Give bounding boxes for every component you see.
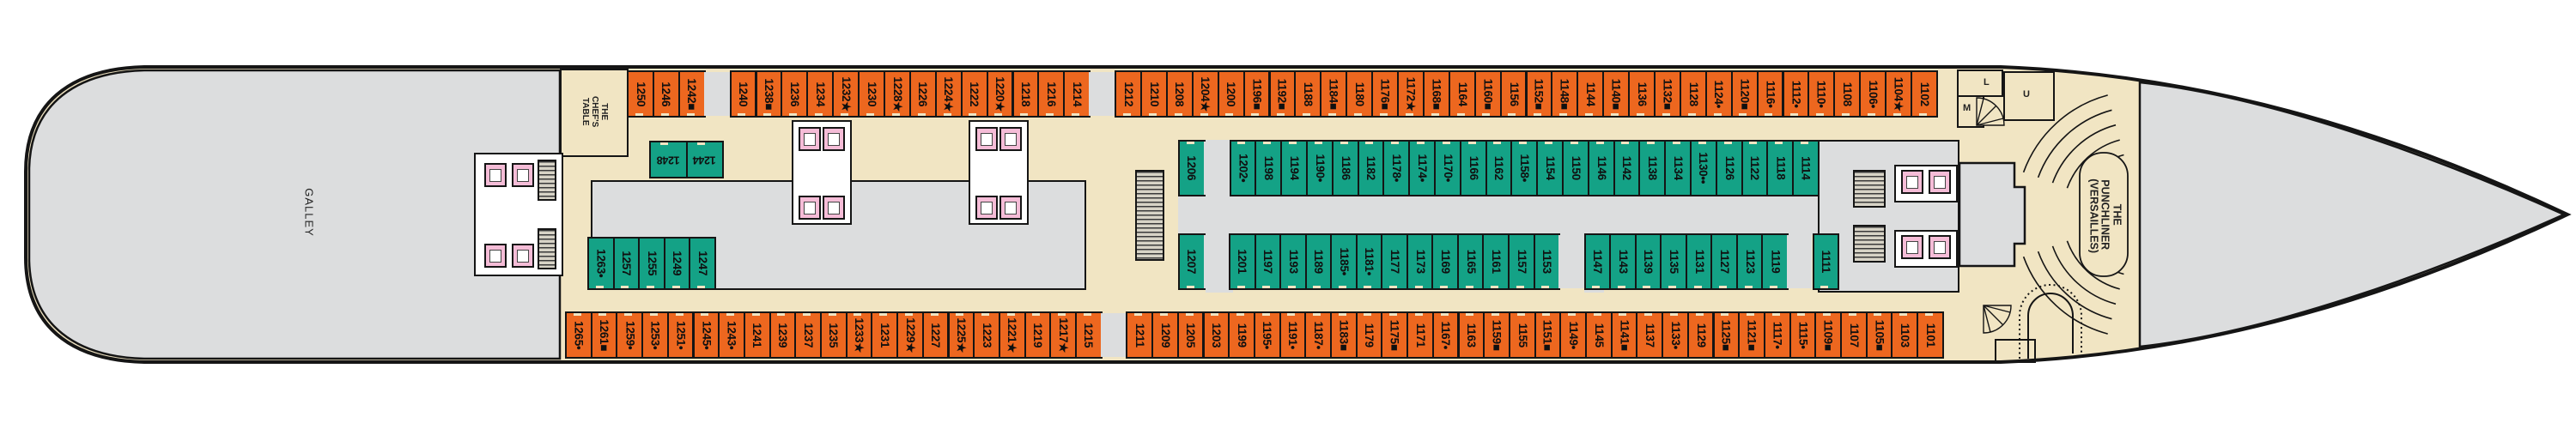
cabin-door (1893, 113, 1901, 117)
elevator-label-u: U (2023, 89, 2030, 100)
cabin-1132[interactable]: 1132■ (1654, 70, 1681, 118)
cabin-number: 1211 (1133, 323, 1145, 347)
cabin-door (1698, 141, 1706, 144)
row-gap (704, 72, 730, 116)
cabin-number: 1140■ (1610, 79, 1622, 110)
cabin-door (1339, 312, 1346, 316)
cabin-door (1211, 312, 1218, 316)
cabin-1253[interactable]: 1253• (641, 311, 669, 359)
cabin-1122[interactable]: 1122 (1741, 140, 1769, 196)
cabin-1129[interactable]: 1129 (1687, 311, 1715, 359)
cabin-1221[interactable]: 1221★ (999, 311, 1026, 359)
cabin-door (1816, 113, 1824, 117)
cabin-1144[interactable]: 1144 (1577, 70, 1604, 118)
theater-stage (1959, 163, 2025, 266)
cabin-1145[interactable]: 1145 (1585, 311, 1613, 359)
cabin-door (1618, 286, 1625, 289)
cabin-door (1643, 286, 1650, 289)
cabin-1184[interactable]: 1184■ (1320, 70, 1347, 118)
cabin-door (621, 286, 629, 289)
cabin-1103[interactable]: 1103 (1891, 311, 1918, 359)
cabin-number: 1158• (1519, 154, 1531, 183)
cabin-door (1571, 141, 1578, 144)
cabin-1150[interactable]: 1150 (1562, 140, 1589, 196)
cabin-1251[interactable]: 1251• (667, 311, 695, 359)
cabin-number: 1157 (1516, 250, 1528, 274)
cabin-1215[interactable]: 1215 (1075, 311, 1103, 359)
cabin-1128[interactable]: 1128 (1680, 70, 1707, 118)
cabin-number: 1134 (1672, 156, 1684, 180)
stairs-icon (1853, 170, 1886, 208)
cabin-1178[interactable]: 1178• (1382, 140, 1410, 196)
cabin-door (1315, 141, 1322, 144)
cabin-1174[interactable]: 1174• (1408, 140, 1436, 196)
cabin-1143[interactable]: 1143 (1609, 233, 1637, 290)
elevator-icon (512, 163, 534, 187)
cabin-1110[interactable]: 1110• (1807, 70, 1835, 118)
cabin-number: 1112• (1790, 81, 1802, 108)
cabin-1153[interactable]: 1153 (1534, 233, 1561, 290)
cabin-1199[interactable]: 1199 (1228, 311, 1255, 359)
cabin-1246[interactable]: 1246 (653, 70, 680, 118)
cabin-door (1797, 312, 1805, 316)
cabin-1101[interactable]: 1101 (1917, 311, 1944, 359)
cabin-1203[interactable]: 1203 (1203, 311, 1230, 359)
cabin-1120[interactable]: 1120■ (1731, 70, 1759, 118)
cabin-1169[interactable]: 1169 (1431, 233, 1459, 290)
cabin-1198[interactable]: 1198 (1255, 140, 1282, 196)
cabin-1115[interactable]: 1115• (1789, 311, 1817, 359)
cabin-door (981, 312, 989, 316)
cabin-door (1225, 113, 1233, 117)
cabin-1250[interactable]: 1250 (627, 70, 654, 118)
elevator-icon (999, 127, 1022, 151)
cabin-1149[interactable]: 1149• (1559, 311, 1587, 359)
cabin-1206[interactable]: 1206 (1178, 140, 1206, 196)
cabin-1176[interactable]: 1176■ (1371, 70, 1399, 118)
cabin-1127[interactable]: 1127 (1710, 233, 1738, 290)
cabin-number: 1168■ (1431, 79, 1443, 110)
cabin-1154[interactable]: 1154 (1536, 140, 1564, 196)
cabin-1236[interactable]: 1236 (781, 70, 808, 118)
cabin-number: 1237 (802, 323, 814, 347)
cabin-1180[interactable]: 1180 (1346, 70, 1373, 118)
cabin-door (1596, 141, 1604, 144)
cabin-1239[interactable]: 1239 (769, 311, 797, 359)
cabin-door (1714, 113, 1722, 117)
cabin-1124[interactable]: 1124• (1705, 70, 1733, 118)
cabin-number: 1117• (1771, 322, 1783, 349)
cabin-number: 1188 (1303, 82, 1315, 106)
cabin-1261[interactable]: 1261■ (591, 311, 618, 359)
cabin-1238[interactable]: 1238■ (756, 70, 783, 118)
cabin-number: 1263• (595, 249, 607, 277)
cabin-1126[interactable]: 1126 (1716, 140, 1743, 196)
cabin-number: 1253• (649, 321, 661, 349)
cabin-door (1516, 286, 1524, 289)
cabin-number: 1127 (1718, 250, 1730, 274)
cabin-1119[interactable]: 1119 (1761, 233, 1789, 290)
cabin-1130[interactable]: 1130•• (1690, 140, 1717, 196)
cabin-1227[interactable]: 1227 (922, 311, 950, 359)
elevator-icon (799, 127, 821, 151)
cabin-door (1236, 312, 1244, 316)
cabin-door (1482, 113, 1490, 117)
cabin-1232[interactable]: 1232★ (832, 70, 860, 118)
cabin-1173[interactable]: 1173 (1406, 233, 1434, 290)
cabin-1233[interactable]: 1233★ (846, 311, 873, 359)
cabin-1109[interactable]: 1109■ (1814, 311, 1842, 359)
elevator-label-l: L (1984, 77, 1990, 88)
cabin-number: 1239 (777, 323, 789, 347)
cabin-1137[interactable]: 1137 (1636, 311, 1663, 359)
cabin-number: 1197 (1262, 250, 1274, 274)
elevator-icon (484, 163, 507, 187)
elevator-icon (1929, 170, 1951, 194)
cabin-1209[interactable]: 1209 (1151, 311, 1179, 359)
cabin-1202[interactable]: 1202• (1230, 140, 1257, 196)
cabin-door (1874, 312, 1881, 316)
cabin-1111[interactable]: 1111 (1813, 233, 1840, 290)
cabin-1191[interactable]: 1191• (1279, 311, 1307, 359)
cabin-1263[interactable]: 1263• (587, 237, 615, 290)
cabin-number: 1145 (1593, 323, 1605, 347)
cabin-1192[interactable]: 1192■ (1269, 70, 1297, 118)
cabin-number: 1206 (1186, 156, 1198, 181)
cabin-number: 1193 (1287, 250, 1299, 274)
cabin-1172[interactable]: 1172★ (1397, 70, 1425, 118)
cabin-1193[interactable]: 1193 (1279, 233, 1307, 290)
cabin-door (1568, 312, 1576, 316)
cabin-1205[interactable]: 1205 (1177, 311, 1205, 359)
cabin-1117[interactable]: 1117• (1764, 311, 1791, 359)
cabin-1161[interactable]: 1161 (1482, 233, 1510, 290)
cabin-door (1313, 286, 1321, 289)
cabin-1160[interactable]: 1160■ (1474, 70, 1502, 118)
cabin-1240[interactable]: 1240 (730, 70, 757, 118)
cabin-1141[interactable]: 1141■ (1611, 311, 1638, 359)
cabin-door (697, 286, 705, 289)
cabin-number: 1165 (1465, 250, 1477, 274)
cabin-1220[interactable]: 1220★ (987, 70, 1014, 118)
cabin-1121[interactable]: 1121■ (1738, 311, 1765, 359)
cabin-number: 1107 (1848, 323, 1860, 347)
cabin-1171[interactable]: 1171 (1406, 311, 1434, 359)
cabin-1183[interactable]: 1183■ (1330, 311, 1358, 359)
cabin-1196[interactable]: 1196■ (1243, 70, 1271, 118)
cabin-door (1925, 312, 1933, 316)
row-gap (1101, 313, 1127, 357)
cabin-door (1160, 312, 1168, 316)
cabin-1152[interactable]: 1152■ (1526, 70, 1553, 118)
cabin-number: 1103 (1899, 323, 1911, 347)
cabin-number: 1139 (1643, 250, 1655, 274)
cabin-1188[interactable]: 1188 (1294, 70, 1321, 118)
cabin-door (1391, 141, 1399, 144)
cabin-1204[interactable]: 1204★ (1192, 70, 1219, 118)
cabin-door (1187, 286, 1194, 289)
cabin-number: 1200 (1225, 82, 1237, 106)
cabin-1212[interactable]: 1212 (1115, 70, 1142, 118)
cabin-1135[interactable]: 1135 (1660, 233, 1687, 290)
cabin-1148[interactable]: 1148■ (1551, 70, 1578, 118)
cabin-1195[interactable]: 1195• (1254, 311, 1281, 359)
cabin-door (1517, 312, 1525, 316)
cabin-1147[interactable]: 1147 (1584, 233, 1612, 290)
cabin-number: 1162 (1493, 156, 1505, 180)
cabin-1231[interactable]: 1231 (871, 311, 898, 359)
theater-label: THE PUNCHLINER (VERSAILLES) (2087, 178, 2123, 251)
cabin-1228[interactable]: 1228★ (884, 70, 911, 118)
cabin-1162[interactable]: 1162 (1485, 140, 1513, 196)
cabin-number: 1221★ (1006, 317, 1018, 353)
cabin-number: 1118 (1775, 156, 1787, 179)
cabin-door (1149, 113, 1157, 117)
cabin-number: 1240 (738, 82, 750, 106)
cabin-door (1457, 113, 1465, 117)
cabin-1242[interactable]: 1242■ (678, 70, 706, 118)
cabin-1133[interactable]: 1133• (1662, 311, 1689, 359)
cabin-1190[interactable]: 1190• (1306, 140, 1334, 196)
cabin-1223[interactable]: 1223 (973, 311, 1000, 359)
cabin-1175[interactable]: 1175■ (1381, 311, 1408, 359)
cabin-1166[interactable]: 1166 (1460, 140, 1487, 196)
cabin-1156[interactable]: 1156 (1500, 70, 1528, 118)
cabin-1168[interactable]: 1168■ (1423, 70, 1450, 118)
cabin-number: 1250 (635, 82, 647, 106)
cabin-number: 1182 (1365, 156, 1377, 180)
cabin-door (1745, 286, 1753, 289)
cabin-1167[interactable]: 1167• (1432, 311, 1460, 359)
cabin-1142[interactable]: 1142 (1613, 140, 1641, 196)
cabin-number: 1184■ (1327, 79, 1340, 110)
elevator-icon (975, 127, 998, 151)
cabin-1163[interactable]: 1163 (1458, 311, 1485, 359)
row-gap (1089, 72, 1115, 116)
cabin-1224[interactable]: 1224★ (935, 70, 963, 118)
cabin-number: 1161 (1490, 250, 1502, 274)
cabin-1197[interactable]: 1197 (1255, 233, 1282, 290)
cabin-1201[interactable]: 1201 (1229, 233, 1256, 290)
cabin-1187[interactable]: 1187• (1304, 311, 1332, 359)
cabin-door (1415, 286, 1423, 289)
cabin-door (1468, 141, 1476, 144)
cabin-number: 1183■ (1338, 320, 1350, 351)
cabin-1186[interactable]: 1186 (1332, 140, 1359, 196)
cabin-door (815, 113, 823, 117)
cabin-number: 1174• (1416, 154, 1428, 183)
cabin-1108[interactable]: 1108 (1833, 70, 1861, 118)
cabin-1104[interactable]: 1104★ (1885, 70, 1912, 118)
cabin-1158[interactable]: 1158• (1510, 140, 1538, 196)
cabin-number: 1171 (1414, 323, 1426, 347)
cabin-number: 1131 (1693, 250, 1705, 274)
elevator-icon (999, 196, 1022, 220)
cabin-1222[interactable]: 1222 (961, 70, 988, 118)
cabin-1140[interactable]: 1140■ (1602, 70, 1630, 118)
cabin-number: 1181• (1364, 248, 1376, 276)
cabin-1165[interactable]: 1165 (1457, 233, 1485, 290)
cabin-number: 1207 (1186, 250, 1198, 275)
cabin-door (1688, 113, 1696, 117)
cabin-1189[interactable]: 1189 (1305, 233, 1333, 290)
cabin-1244[interactable]: 1244 (686, 141, 725, 178)
cabin-door (1619, 312, 1626, 316)
cabin-1229[interactable]: 1229★ (896, 311, 924, 359)
cabin-1257[interactable]: 1257 (613, 237, 641, 290)
cabin-1230[interactable]: 1230 (858, 70, 885, 118)
cabin-1255[interactable]: 1255 (638, 237, 665, 290)
cabin-1200[interactable]: 1200 (1218, 70, 1245, 118)
cabin-door (1328, 113, 1336, 117)
cabin-number: 1203 (1211, 323, 1223, 347)
cabin-door (1724, 141, 1732, 144)
cabin-1217[interactable]: 1217★ (1049, 311, 1077, 359)
cabin-number: 1123 (1744, 250, 1756, 274)
cabin-number: 1154 (1544, 156, 1556, 180)
cabin-door (697, 142, 705, 145)
cabin-1139[interactable]: 1139 (1635, 233, 1662, 290)
cabin-number: 1109■ (1822, 320, 1834, 351)
cabin-1107[interactable]: 1107 (1840, 311, 1868, 359)
cabin-door (574, 312, 581, 316)
cabin-1247[interactable]: 1247 (689, 237, 716, 290)
cabin-1208[interactable]: 1208 (1166, 70, 1194, 118)
cabin-1225[interactable]: 1225★ (948, 311, 975, 359)
cabin-door (1747, 312, 1754, 316)
cabin-number: 1222 (969, 82, 981, 106)
cabin-1102[interactable]: 1102 (1911, 70, 1938, 118)
elevator-icon (823, 127, 845, 151)
cabin-1134[interactable]: 1134 (1664, 140, 1692, 196)
cabin-number: 1244 (693, 154, 716, 166)
cabin-door (1277, 113, 1285, 117)
cabin-1164[interactable]: 1164 (1449, 70, 1476, 118)
cabin-door (1380, 113, 1388, 117)
elevator-icon (484, 244, 507, 268)
cabin-1157[interactable]: 1157 (1508, 233, 1535, 290)
cabin-door (1263, 141, 1271, 144)
cabin-1234[interactable]: 1234 (806, 70, 834, 118)
cabin-1112[interactable]: 1112• (1783, 70, 1810, 118)
cabin-1245[interactable]: 1245• (693, 311, 720, 359)
cabin-1125[interactable]: 1125■ (1713, 311, 1741, 359)
cabin-door (624, 312, 632, 316)
cabin-door (1775, 141, 1783, 144)
cabin-number: 1179 (1364, 323, 1376, 347)
cabin-1259[interactable]: 1259• (616, 311, 643, 359)
cabin-1207[interactable]: 1207 (1178, 233, 1206, 290)
cabin-number: 1126 (1723, 156, 1735, 180)
cabin-1106[interactable]: 1106• (1859, 70, 1886, 118)
cabin-1118[interactable]: 1118 (1766, 140, 1794, 196)
cabin-number: 1166 (1467, 156, 1479, 180)
stairs-icon (1853, 225, 1886, 263)
cabin-1219[interactable]: 1219 (1024, 311, 1052, 359)
cabin-1182[interactable]: 1182 (1358, 140, 1385, 196)
cabin-1136[interactable]: 1136 (1628, 70, 1656, 118)
cabin-1214[interactable]: 1214 (1063, 70, 1091, 118)
cabin-1237[interactable]: 1237 (794, 311, 822, 359)
cabin-1211[interactable]: 1211 (1126, 311, 1153, 359)
cabin-door (841, 113, 848, 117)
cabin-door (1262, 312, 1270, 316)
cabin-1249[interactable]: 1249 (664, 237, 691, 290)
cabin-number: 1217★ (1057, 317, 1069, 353)
cabin-1216[interactable]: 1216 (1037, 70, 1065, 118)
cabin-door (738, 113, 745, 117)
cabin-door (1508, 113, 1516, 117)
cabin-number: 1241 (751, 323, 763, 347)
cabin-1210[interactable]: 1210 (1140, 70, 1168, 118)
cabin-number: 1202• (1237, 154, 1249, 182)
cabin-1123[interactable]: 1123 (1736, 233, 1764, 290)
cabin-1181[interactable]: 1181• (1356, 233, 1383, 290)
cabin-door (1440, 286, 1448, 289)
cabin-door (1251, 113, 1259, 117)
cabin-1265[interactable]: 1265• (565, 311, 592, 359)
cabin-1235[interactable]: 1235 (820, 311, 848, 359)
cabin-1177[interactable]: 1177 (1381, 233, 1408, 290)
cabin-door (1545, 141, 1552, 144)
cabin-1114[interactable]: 1114 (1792, 140, 1820, 196)
cabin-number: 1143 (1617, 250, 1629, 274)
cabin-1218[interactable]: 1218 (1012, 70, 1040, 118)
cabin-1138[interactable]: 1138 (1638, 140, 1666, 196)
cabin-door (635, 113, 643, 117)
cabin-door (598, 312, 606, 316)
cabin-door (789, 113, 797, 117)
cabin-1159[interactable]: 1159■ (1483, 311, 1510, 359)
elevator-icon (1929, 235, 1951, 259)
cabin-1131[interactable]: 1131 (1686, 233, 1713, 290)
cabin-1146[interactable]: 1146 (1588, 140, 1615, 196)
cabin-door (1719, 286, 1727, 289)
elevator-icon (799, 196, 821, 220)
cabin-door (1673, 141, 1680, 144)
cabin-door (1443, 141, 1450, 144)
cabin-1155[interactable]: 1155 (1509, 311, 1536, 359)
cabin-door (1519, 141, 1527, 144)
cabin-door (1493, 141, 1501, 144)
cabin-number: 1144 (1585, 82, 1597, 106)
cabin-1248[interactable]: 1248 (649, 141, 688, 178)
cabin-1241[interactable]: 1241 (744, 311, 771, 359)
cabin-1243[interactable]: 1243• (718, 311, 745, 359)
cabin-door (1237, 141, 1245, 144)
cabin-number: 1180 (1353, 82, 1365, 106)
cabin-number: 1219 (1032, 323, 1044, 347)
cabin-1194[interactable]: 1194 (1280, 140, 1308, 196)
cabin-1151[interactable]: 1151■ (1534, 311, 1562, 359)
cabin-door (752, 312, 760, 316)
center-corridor-area (1178, 196, 1818, 235)
cabin-door (1123, 113, 1131, 117)
cabin-1116[interactable]: 1116• (1757, 70, 1784, 118)
cabin-1105[interactable]: 1105■ (1866, 311, 1893, 359)
cabin-1226[interactable]: 1226 (909, 70, 937, 118)
cabin-number: 1205 (1185, 323, 1197, 347)
cabin-door (1389, 286, 1397, 289)
cabin-number: 1255 (646, 251, 658, 276)
cabin-1170[interactable]: 1170• (1434, 140, 1461, 196)
cabin-number: 1172★ (1405, 77, 1417, 112)
cabin-door (701, 312, 708, 316)
cabin-1179[interactable]: 1179 (1356, 311, 1383, 359)
cabin-number: 1226 (917, 82, 929, 106)
elevator-label-m: M (1963, 103, 1971, 113)
cabin-1185[interactable]: 1185• (1330, 233, 1358, 290)
